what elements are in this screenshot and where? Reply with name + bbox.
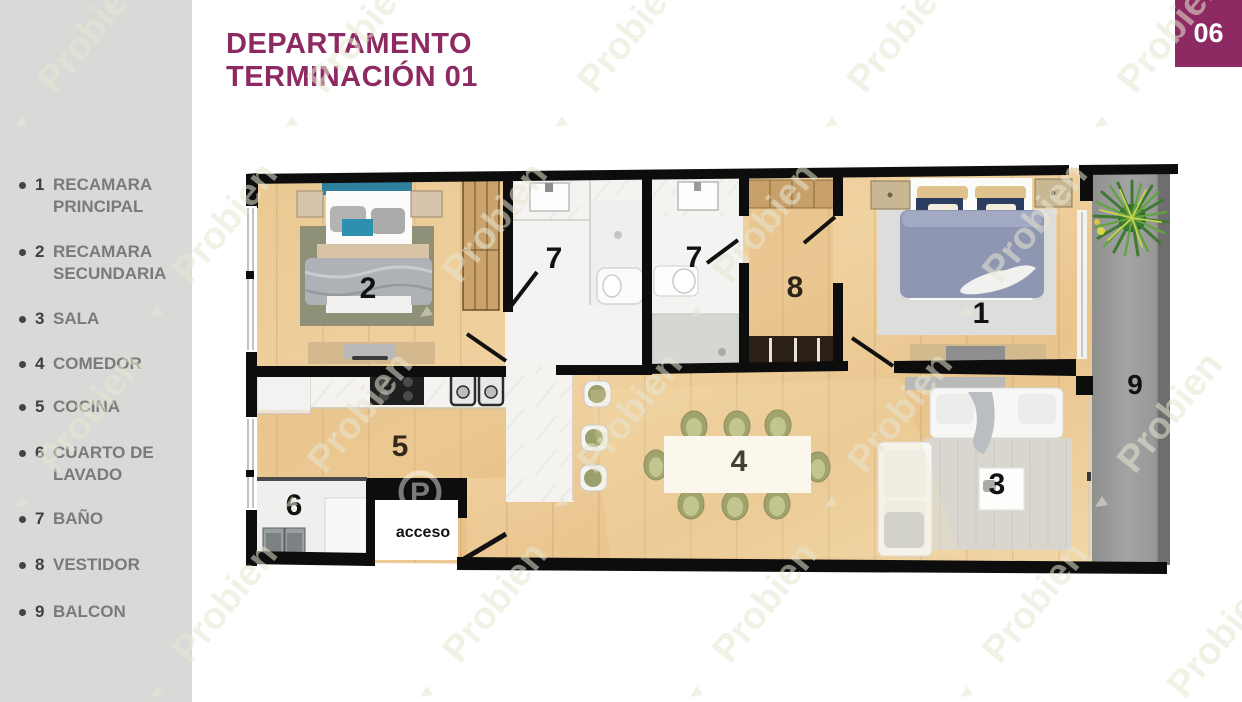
svg-text:2: 2 — [360, 272, 377, 305]
svg-text:6: 6 — [286, 489, 303, 522]
svg-text:7: 7 — [546, 242, 563, 275]
svg-text:acceso: acceso — [396, 524, 450, 541]
svg-text:1: 1 — [973, 297, 990, 330]
svg-text:9: 9 — [1127, 369, 1143, 400]
svg-text:7: 7 — [686, 241, 703, 274]
svg-text:3: 3 — [989, 468, 1006, 501]
